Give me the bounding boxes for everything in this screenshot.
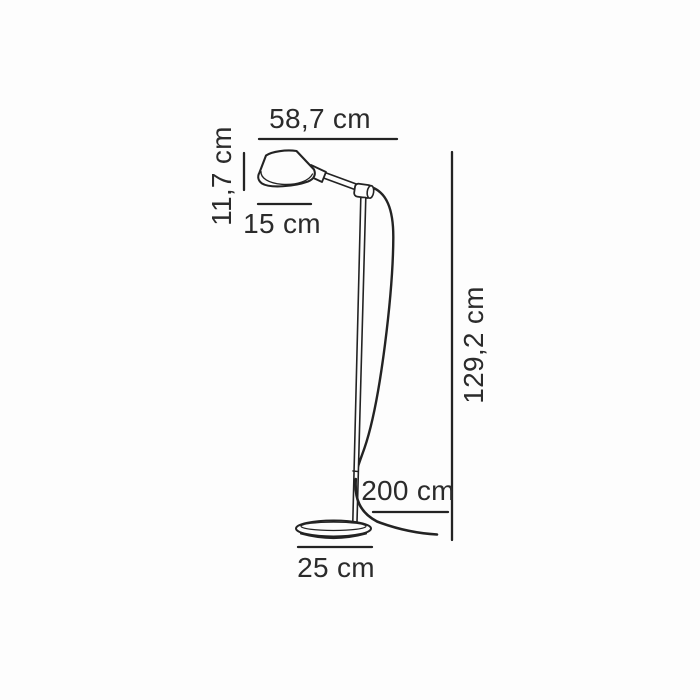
dimension-diagram: 58,7 cm 11,7 cm 15 cm 129,2 cm 200 cm 25… xyxy=(0,0,700,700)
lamp-joint xyxy=(354,183,375,199)
lamp-base xyxy=(296,521,371,539)
lamp-shade xyxy=(258,151,315,187)
pole-cable-fitting xyxy=(353,471,358,472)
head-depth-label: 15 cm xyxy=(243,210,321,238)
lamp-pole xyxy=(353,198,366,523)
head-height-label: 11,7 cm xyxy=(208,126,236,226)
total-height-label: 129,2 cm xyxy=(460,286,488,404)
cable-length-label: 200 cm xyxy=(361,477,455,505)
lamp-arm xyxy=(324,173,360,191)
base-diameter-label: 25 cm xyxy=(297,554,375,582)
width-label: 58,7 cm xyxy=(269,105,371,133)
